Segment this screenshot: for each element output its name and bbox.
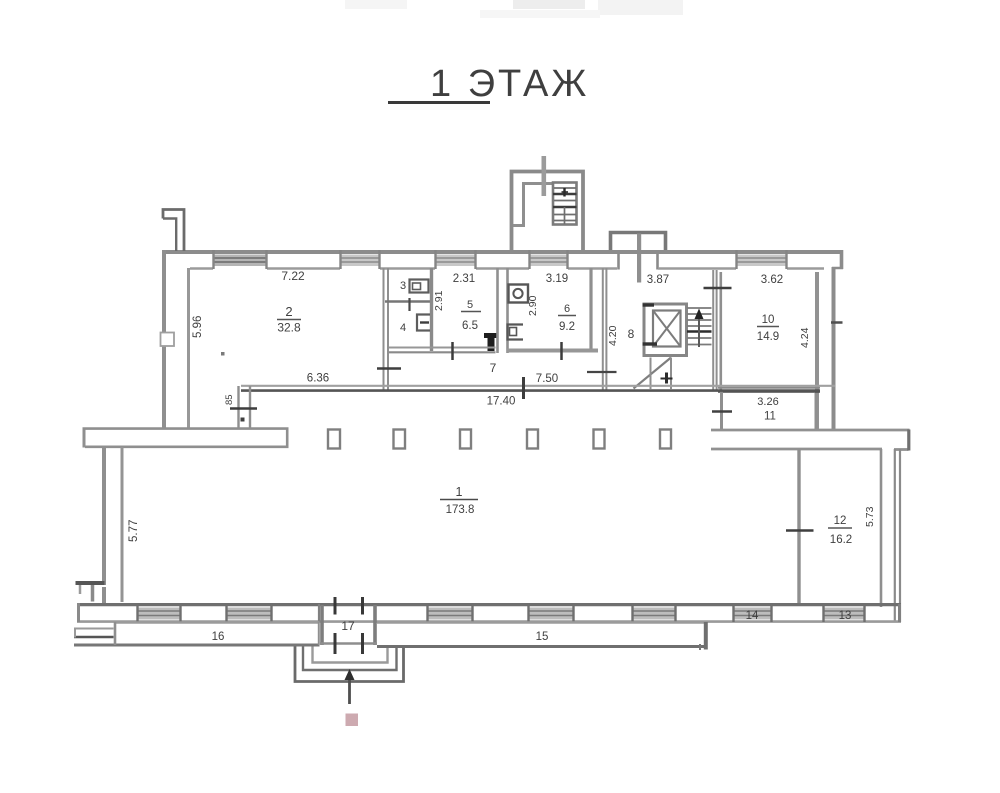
- svg-text:1 ЭТАЖ: 1 ЭТАЖ: [430, 63, 589, 105]
- svg-text:4.24: 4.24: [799, 327, 811, 348]
- svg-text:7.50: 7.50: [536, 373, 558, 385]
- svg-text:16: 16: [212, 631, 225, 643]
- svg-text:16.2: 16.2: [830, 534, 852, 546]
- svg-text:14.9: 14.9: [757, 331, 779, 343]
- svg-text:3: 3: [400, 280, 406, 292]
- svg-text:3.62: 3.62: [761, 274, 783, 286]
- svg-text:11: 11: [764, 411, 776, 423]
- svg-text:13: 13: [839, 610, 852, 622]
- svg-text:1: 1: [456, 485, 463, 499]
- svg-text:7.22: 7.22: [281, 269, 305, 283]
- svg-text:2.90: 2.90: [527, 295, 539, 316]
- svg-text:5.96: 5.96: [192, 316, 204, 338]
- svg-text:3.26: 3.26: [757, 396, 778, 408]
- svg-text:3.19: 3.19: [546, 273, 568, 285]
- svg-text:4: 4: [400, 322, 406, 334]
- svg-text:15: 15: [536, 631, 549, 643]
- svg-text:2.31: 2.31: [453, 273, 475, 285]
- svg-text:32.8: 32.8: [277, 321, 301, 335]
- svg-text:8: 8: [628, 327, 635, 341]
- svg-text:4.20: 4.20: [607, 325, 619, 346]
- svg-text:2: 2: [285, 304, 292, 319]
- svg-text:2.91: 2.91: [433, 290, 445, 311]
- svg-text:6.36: 6.36: [307, 373, 329, 385]
- svg-text:6.5: 6.5: [462, 320, 478, 332]
- svg-text:5.77: 5.77: [128, 520, 140, 542]
- svg-text:3.87: 3.87: [647, 274, 669, 286]
- svg-text:9.2: 9.2: [559, 321, 575, 333]
- svg-text:12: 12: [834, 515, 847, 527]
- svg-text:85: 85: [224, 394, 235, 405]
- svg-text:5: 5: [467, 299, 473, 311]
- svg-text:6: 6: [564, 303, 570, 315]
- svg-text:5.73: 5.73: [864, 506, 876, 527]
- svg-text:10: 10: [762, 314, 775, 326]
- svg-text:173.8: 173.8: [446, 504, 475, 516]
- svg-text:17: 17: [341, 619, 355, 633]
- svg-text:14: 14: [746, 610, 759, 622]
- svg-text:17.40: 17.40: [487, 396, 516, 408]
- svg-text:7: 7: [490, 361, 497, 375]
